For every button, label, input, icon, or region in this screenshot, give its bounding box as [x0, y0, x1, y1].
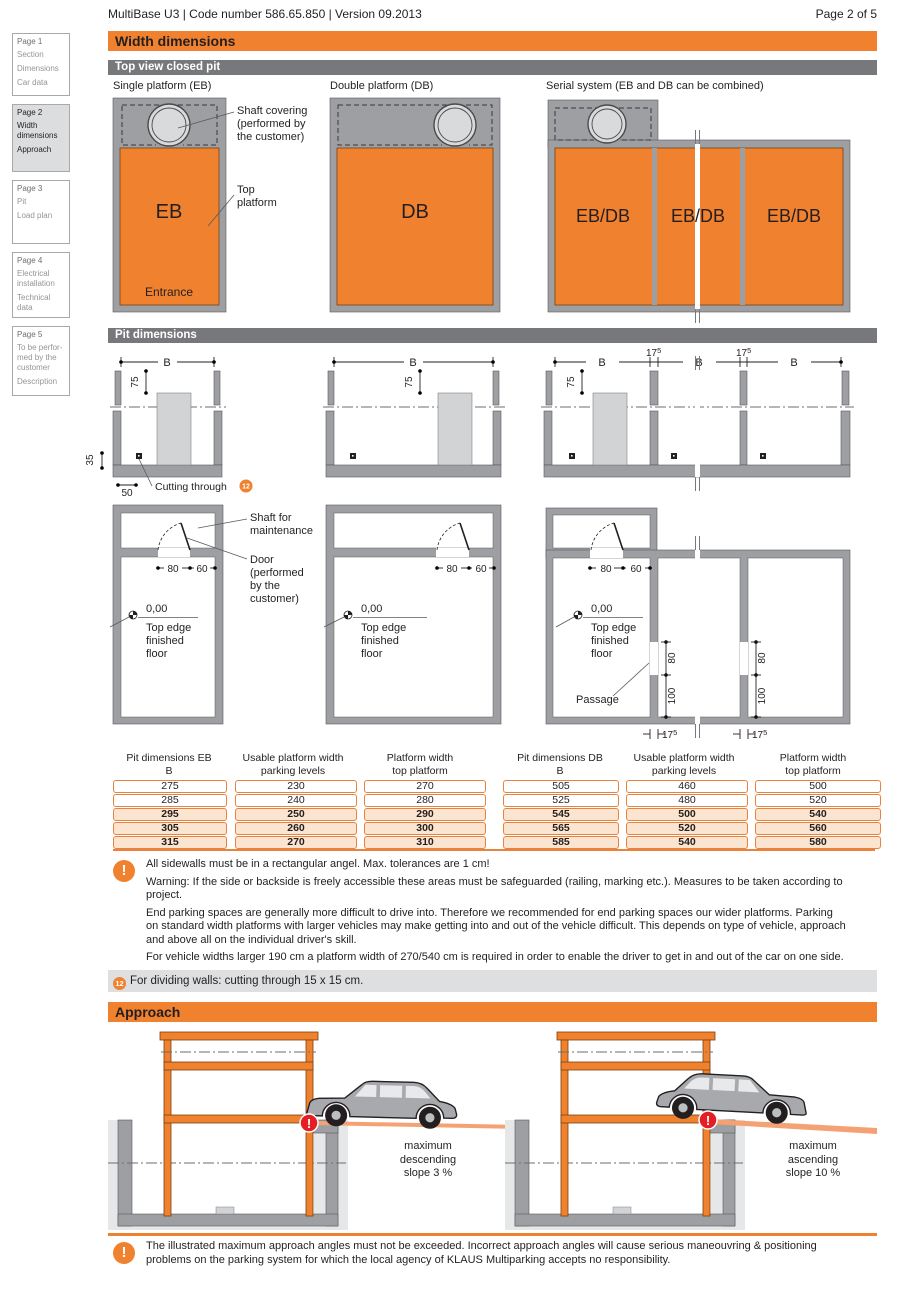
svg-text:(performed by: (performed by: [237, 118, 306, 130]
top-view-serial-diagram: EB/DB EB/DB EB/DB: [548, 100, 850, 323]
svg-text:12: 12: [242, 484, 250, 491]
dim-b: B: [598, 357, 605, 369]
table-row: 315270310: [113, 836, 486, 849]
document-title: MultiBase U3 | Code number 586.65.850 | …: [108, 7, 422, 21]
sidebar-page-4[interactable]: Page 4 Electrical installation Technical…: [12, 252, 70, 318]
passage-label: Passage: [576, 694, 619, 706]
sidebar-item[interactable]: To be perfor-med by the customer: [17, 343, 67, 373]
dim-175: 175: [752, 728, 767, 741]
dim-175: 175: [662, 728, 677, 741]
ebdb-label: EB/DB: [671, 206, 725, 226]
svg-text:platform: platform: [237, 197, 277, 209]
table-row: 565520560: [503, 822, 881, 835]
dim-175: 175: [736, 346, 751, 359]
pit-section-db: B 75: [323, 357, 505, 477]
dim-80: 80: [757, 652, 768, 664]
dim-100: 100: [667, 687, 678, 704]
svg-text:maintenance: maintenance: [250, 525, 313, 537]
alert-icon: !: [699, 1111, 717, 1129]
dividing-walls-note: 12For dividing walls: cutting through 15…: [108, 970, 877, 992]
pit-plan-views: 80 60 0,00 Top edge finished floor Shaft…: [108, 503, 877, 746]
dim-35: 35: [85, 454, 96, 466]
svg-text:!: !: [706, 1113, 710, 1128]
warning-icon: !: [113, 1242, 135, 1264]
datum-symbol: [129, 611, 137, 619]
ref-12-marker: 12: [113, 977, 126, 990]
alert-icon: !: [300, 1114, 318, 1132]
pit-plan-eb: 80 60 0,00 Top edge finished floor Shaft…: [110, 505, 313, 724]
dim-175: 175: [646, 346, 661, 359]
svg-text:Door: Door: [250, 554, 274, 566]
sidebar-item[interactable]: Width dimensions: [17, 121, 67, 141]
dim-b: B: [790, 357, 797, 369]
pit-plan-db: 80 60 0,00 Top edge finished floor: [324, 505, 501, 724]
sidebar-page-title: Page 4: [17, 256, 67, 266]
dim-80: 80: [446, 564, 458, 575]
ascending-slope-label: maximum ascending slope 10 %: [733, 1140, 893, 1181]
eb-dimensions-table: Pit dimensions EBB Usable platform width…: [113, 752, 486, 849]
serial-system-title: Serial system (EB and DB can be combined…: [546, 80, 764, 92]
db-platform: [337, 148, 493, 305]
top-view-db-diagram: DB: [330, 98, 500, 312]
db-label: DB: [401, 201, 429, 223]
dim-75: 75: [130, 376, 141, 388]
sidebar-item[interactable]: Car data: [17, 78, 67, 88]
svg-text:finished: finished: [146, 635, 184, 647]
sidebar-item[interactable]: Electrical installation: [17, 269, 67, 289]
dim-60: 60: [196, 564, 208, 575]
svg-text:Shaft for: Shaft for: [250, 512, 292, 524]
sidebar-page-title: Page 3: [17, 184, 67, 194]
dim-50: 50: [121, 488, 133, 499]
descending-slope-label: maximum descending slope 3 %: [348, 1140, 508, 1181]
dim-80: 80: [600, 564, 612, 575]
table-row: 525480520: [503, 794, 881, 807]
top-view-eb-diagram: EB Entrance Shaft covering (performed by…: [113, 98, 307, 312]
dim-75: 75: [404, 376, 415, 388]
sidebar-item[interactable]: Technical data: [17, 293, 67, 313]
zero-level: 0,00: [146, 603, 167, 615]
approach-bottom-rule: [108, 1233, 877, 1236]
sidebar-item[interactable]: Description: [17, 377, 67, 387]
sidebar-item[interactable]: Section: [17, 50, 67, 60]
approach-diagrams: ! !: [108, 1028, 877, 1231]
warning-paragraph: End parking spaces are generally more di…: [146, 907, 846, 948]
warning-paragraph: All sidewalls must be in a rectangular a…: [146, 858, 846, 872]
warning-text-block: All sidewalls must be in a rectangular a…: [146, 858, 846, 969]
svg-text:customer): customer): [250, 593, 299, 605]
dim-b: B: [409, 357, 416, 369]
svg-text:floor: floor: [361, 648, 383, 660]
approach-warning-text: The illustrated maximum approach angles …: [146, 1240, 846, 1271]
sidebar-page-title: Page 2: [17, 108, 67, 118]
sidebar-item[interactable]: Approach: [17, 145, 67, 155]
top-view-diagrams: EB Entrance Shaft covering (performed by…: [108, 96, 877, 320]
svg-text:Top edge: Top edge: [591, 622, 636, 634]
subsection-top-view: Top view closed pit: [108, 60, 877, 75]
svg-text:Top edge: Top edge: [361, 622, 406, 634]
approach-descending-diagram: !: [108, 1032, 519, 1230]
sidebar-item[interactable]: Pit: [17, 197, 67, 207]
sidebar-page-3[interactable]: Page 3 Pit Load plan: [12, 180, 70, 244]
double-platform-title: Double platform (DB): [330, 80, 433, 92]
single-platform-title: Single platform (EB): [113, 80, 211, 92]
dim-60: 60: [475, 564, 487, 575]
table-row: 305260300: [113, 822, 486, 835]
warning-icon: !: [113, 860, 135, 882]
svg-text:by the: by the: [250, 580, 280, 592]
section-width-dimensions: Width dimensions: [108, 31, 877, 51]
pit-plan-serial: 80 60 0,00 Top edge finished floor Passa…: [546, 508, 850, 741]
car-ascending: [656, 1072, 808, 1126]
warning-paragraph: Warning: If the side or backside is free…: [146, 876, 846, 903]
dim-100: 100: [757, 687, 768, 704]
car-descending: [306, 1080, 457, 1130]
cutting-through-label: Cutting through: [155, 481, 227, 493]
dim-60: 60: [630, 564, 642, 575]
sidebar-page-title: Page 1: [17, 37, 67, 47]
dim-75: 75: [566, 376, 577, 388]
approach-ascending-diagram: !: [505, 1032, 877, 1230]
eb-label: EB: [156, 201, 183, 223]
ebdb-label: EB/DB: [767, 206, 821, 226]
sidebar-page-2[interactable]: Page 2 Width dimensions Approach: [12, 104, 70, 172]
table-row: 275230270: [113, 780, 486, 793]
pit-section-eb: B 75 35 50 Cutting through 12: [85, 357, 253, 499]
pit-cross-sections: B 75 35 50 Cutting through 12 B 75: [86, 346, 877, 503]
table-row: 585540580: [503, 836, 881, 849]
svg-text:finished: finished: [591, 635, 629, 647]
warning-paragraph: For vehicle widths larger 190 cm a platf…: [146, 951, 846, 965]
dim-80: 80: [667, 652, 678, 664]
subsection-pit-dimensions: Pit dimensions: [108, 328, 877, 343]
zero-level: 0,00: [361, 603, 382, 615]
ebdb-label: EB/DB: [576, 206, 630, 226]
page-indicator: Page 2 of 5: [777, 7, 877, 21]
section-approach: Approach: [108, 1002, 877, 1022]
svg-text:Top edge: Top edge: [146, 622, 191, 634]
svg-text:floor: floor: [591, 648, 613, 660]
table-row: 285240280: [113, 794, 486, 807]
table-row: 295250290: [113, 808, 486, 821]
sidebar-item[interactable]: Dimensions: [17, 64, 67, 74]
db-dimensions-table: Pit dimensions DBB Usable platform width…: [503, 752, 881, 849]
sidebar-item[interactable]: Load plan: [17, 211, 67, 221]
eb-platform: [120, 148, 219, 305]
zero-level: 0,00: [591, 603, 612, 615]
pit-section-serial: B B B 175 175 75: [541, 346, 854, 491]
table-row: 505460500: [503, 780, 881, 793]
sidebar-page-5[interactable]: Page 5 To be perfor-med by the customer …: [12, 326, 70, 396]
svg-text:Shaft covering: Shaft covering: [237, 105, 307, 117]
dim-b: B: [163, 357, 170, 369]
dim-80: 80: [167, 564, 179, 575]
sidebar-page-1[interactable]: Page 1 Section Dimensions Car data: [12, 33, 70, 96]
svg-text:Top: Top: [237, 184, 255, 196]
svg-text:!: !: [307, 1116, 311, 1131]
table-row: 545500540: [503, 808, 881, 821]
entrance-label: Entrance: [145, 285, 193, 299]
svg-text:the customer): the customer): [237, 131, 304, 143]
svg-text:(performed: (performed: [250, 567, 304, 579]
svg-text:finished: finished: [361, 635, 399, 647]
datum-symbol: [574, 611, 582, 619]
sidebar-page-title: Page 5: [17, 330, 67, 340]
datum-symbol: [344, 611, 352, 619]
svg-text:floor: floor: [146, 648, 168, 660]
table-separator-rule: [113, 849, 875, 851]
